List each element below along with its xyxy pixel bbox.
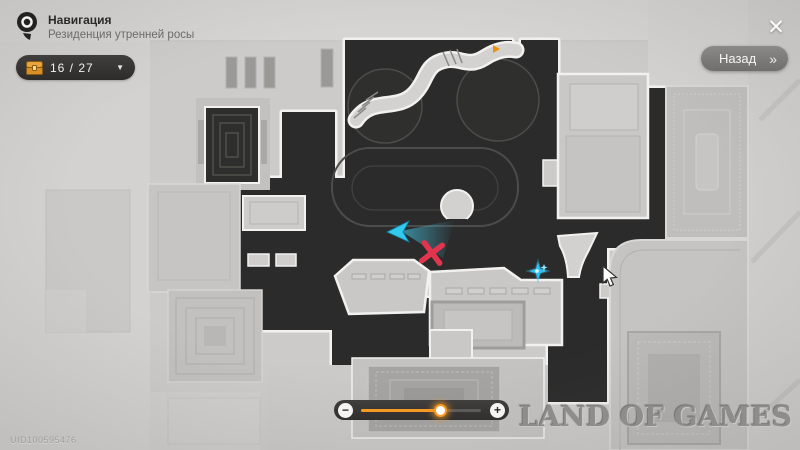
location-subtitle: Резиденция утренней росы bbox=[48, 28, 194, 42]
close-icon: ✕ bbox=[767, 15, 785, 40]
zoom-slider-knob[interactable] bbox=[434, 404, 447, 417]
page-title: Навигация bbox=[48, 13, 194, 27]
zoom-slider-track[interactable] bbox=[361, 409, 481, 412]
map-zoom-slider[interactable]: − + bbox=[334, 400, 509, 420]
location-pin-icon bbox=[14, 10, 40, 42]
zoom-in-button[interactable]: + bbox=[490, 403, 505, 418]
uid-watermark: UID100595476 bbox=[10, 435, 77, 445]
navigation-header: Навигация Резиденция утренней росы bbox=[14, 10, 194, 42]
chest-counter-dropdown[interactable]: 16 / 27 ▼ bbox=[16, 55, 135, 80]
brand-watermark: LAND OF GAMES bbox=[519, 400, 792, 433]
treasure-chest-icon bbox=[26, 61, 43, 75]
chevron-down-icon: ▼ bbox=[116, 63, 124, 72]
back-button-label: Назад bbox=[719, 51, 756, 66]
chest-count-label: 16 / 27 bbox=[50, 61, 94, 75]
zoom-out-button[interactable]: − bbox=[338, 403, 353, 418]
double-chevron-right-icon: » bbox=[769, 51, 776, 67]
close-button[interactable]: ✕ bbox=[762, 13, 790, 41]
back-button[interactable]: Назад » bbox=[701, 46, 788, 71]
zoom-slider-fill bbox=[361, 409, 440, 412]
